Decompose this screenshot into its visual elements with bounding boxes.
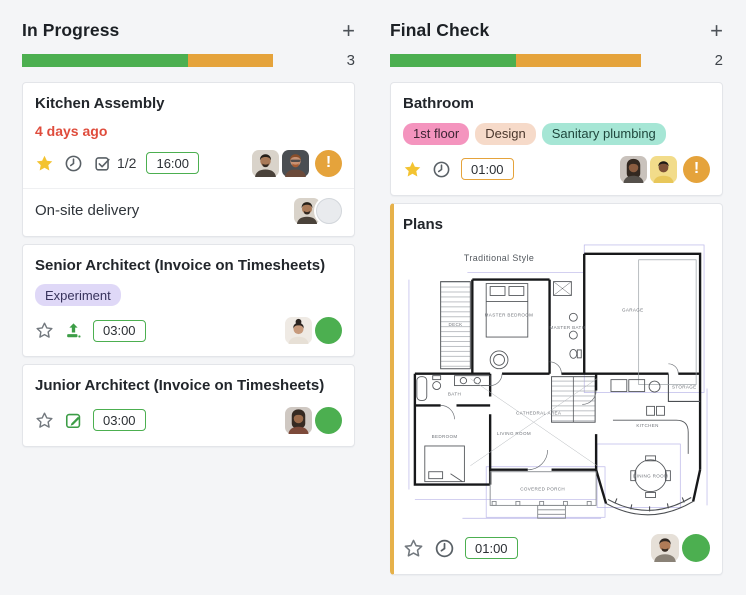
star-filled-icon[interactable] — [35, 154, 54, 173]
assignees-group: ! — [620, 156, 710, 183]
status-green-circle[interactable] — [315, 407, 342, 434]
floor-plan-image[interactable]: Traditional Style DECK MASTER BEDROOM MA… — [403, 240, 710, 525]
card-meta-row: 01:00 ! — [403, 156, 710, 183]
status-green-circle[interactable] — [315, 317, 342, 344]
card-title: Senior Architect (Invoice on Timesheets) — [35, 256, 342, 276]
assignees-group — [285, 317, 342, 344]
progress-orange-segment — [188, 54, 273, 67]
clock-icon[interactable] — [432, 160, 451, 179]
card-meta-row: 1/2 16:00 ! — [35, 150, 342, 177]
plan-style-label: Traditional Style — [464, 253, 534, 263]
room-label-cathedral-area: CATHEDRAL AREA — [516, 410, 562, 415]
status-green-circle[interactable] — [682, 534, 710, 562]
assignees-group — [285, 407, 342, 434]
card-junior-architect[interactable]: Junior Architect (Invoice on Timesheets)… — [22, 364, 355, 447]
room-label-deck: DECK — [448, 322, 462, 327]
tag-row: 1st floor Design Sanitary plumbing — [403, 123, 710, 145]
room-label-bath: BATH — [448, 391, 461, 396]
card-title: Plans — [403, 215, 710, 235]
card-count: 3 — [347, 52, 355, 69]
porch — [490, 472, 596, 519]
tag-design[interactable]: Design — [475, 123, 535, 145]
column-final-check: Final Check + 2 Bathroom 1st floor Desig… — [390, 20, 723, 575]
card-title: Bathroom — [403, 94, 710, 114]
column-progress-row: 3 — [22, 52, 355, 69]
tag-sanitary-plumbing[interactable]: Sanitary plumbing — [542, 123, 666, 145]
clock-icon[interactable] — [64, 154, 83, 173]
time-estimate-badge[interactable]: 01:00 — [461, 158, 514, 180]
card-list: Kitchen Assembly 4 days ago 1/2 — [22, 82, 355, 447]
column-progress-bar — [22, 54, 273, 67]
card-count: 2 — [715, 52, 723, 69]
room-label-storage: STORAGE — [672, 385, 697, 390]
add-card-button[interactable]: + — [342, 21, 355, 41]
card-plans[interactable]: Plans — [390, 203, 723, 576]
card-list: Bathroom 1st floor Design Sanitary plumb… — [390, 82, 723, 575]
room-label-garage: GARAGE — [622, 307, 644, 312]
column-in-progress: In Progress + 3 Kitchen Assembly 4 days … — [22, 20, 355, 575]
progress-green-segment — [390, 54, 516, 67]
subtask-title: On-site delivery — [35, 202, 139, 219]
upload-icon[interactable] — [64, 321, 83, 340]
room-label-dining-room: DINING ROOM — [633, 474, 668, 479]
tag-1st-floor[interactable]: 1st floor — [403, 123, 469, 145]
inner-walls — [639, 260, 700, 402]
subtask-row[interactable]: On-site delivery — [35, 189, 342, 224]
room-label-master-bedroom: MASTER BEDROOM — [485, 312, 534, 317]
avatar-woman-dark-hair[interactable] — [620, 156, 647, 183]
column-progress-bar — [390, 54, 641, 67]
progress-orange-segment — [516, 54, 642, 67]
avatar-man-beard[interactable] — [651, 534, 679, 562]
tag-row: Experiment — [35, 284, 342, 306]
column-progress-row: 2 — [390, 52, 723, 69]
card-title: Kitchen Assembly — [35, 94, 342, 114]
card-bathroom[interactable]: Bathroom 1st floor Design Sanitary plumb… — [390, 82, 723, 196]
star-filled-icon[interactable] — [403, 160, 422, 179]
overdue-alert-badge: ! — [315, 150, 342, 177]
column-title: In Progress — [22, 20, 119, 41]
card-meta-row: 01:00 — [403, 534, 710, 562]
avatar-woman-bun[interactable] — [285, 317, 312, 344]
column-title: Final Check — [390, 20, 489, 41]
room-label-living-room: LIVING ROOM — [497, 431, 531, 436]
status-empty-circle[interactable] — [316, 198, 342, 224]
room-label-kitchen: KITCHEN — [636, 423, 658, 428]
column-header: In Progress + — [22, 20, 355, 41]
card-meta-row: 03:00 — [35, 317, 342, 344]
card-kitchen-assembly[interactable]: Kitchen Assembly 4 days ago 1/2 — [22, 82, 355, 237]
overdue-alert-badge: ! — [683, 156, 710, 183]
checklist-group[interactable]: 1/2 — [93, 154, 136, 173]
kanban-board: In Progress + 3 Kitchen Assembly 4 days … — [0, 0, 746, 595]
progress-green-segment — [22, 54, 188, 67]
avatar-woman-long-hair[interactable] — [285, 407, 312, 434]
time-estimate-badge[interactable]: 16:00 — [146, 152, 199, 174]
avatar-man-beard[interactable] — [252, 150, 279, 177]
time-estimate-badge[interactable]: 03:00 — [93, 409, 146, 431]
card-title: Junior Architect (Invoice on Timesheets) — [35, 376, 342, 396]
star-outline-icon[interactable] — [403, 538, 424, 559]
star-outline-icon[interactable] — [35, 321, 54, 340]
assignees-group: ! — [252, 150, 342, 177]
column-header: Final Check + — [390, 20, 723, 41]
room-label-covered-porch: COVERED PORCH — [520, 487, 565, 492]
avatar-woman-yellow[interactable] — [650, 156, 677, 183]
due-date-label: 4 days ago — [35, 123, 342, 139]
time-estimate-badge[interactable]: 03:00 — [93, 320, 146, 342]
room-label-bedroom: BEDROOM — [432, 434, 458, 439]
card-senior-architect[interactable]: Senior Architect (Invoice on Timesheets)… — [22, 244, 355, 358]
time-estimate-badge[interactable]: 01:00 — [465, 537, 518, 559]
card-meta-row: 03:00 — [35, 407, 342, 434]
clock-icon[interactable] — [434, 538, 455, 559]
add-card-button[interactable]: + — [710, 21, 723, 41]
room-label-master-bath: MASTER BATH — [549, 325, 585, 330]
avatar-man-ginger[interactable] — [282, 150, 309, 177]
subtask-assignee-group — [294, 198, 342, 224]
assignees-group — [651, 534, 710, 562]
checklist-progress: 1/2 — [117, 155, 136, 171]
checklist-icon — [93, 154, 112, 173]
edit-icon[interactable] — [64, 411, 83, 430]
star-outline-icon[interactable] — [35, 411, 54, 430]
tag-experiment[interactable]: Experiment — [35, 284, 121, 306]
